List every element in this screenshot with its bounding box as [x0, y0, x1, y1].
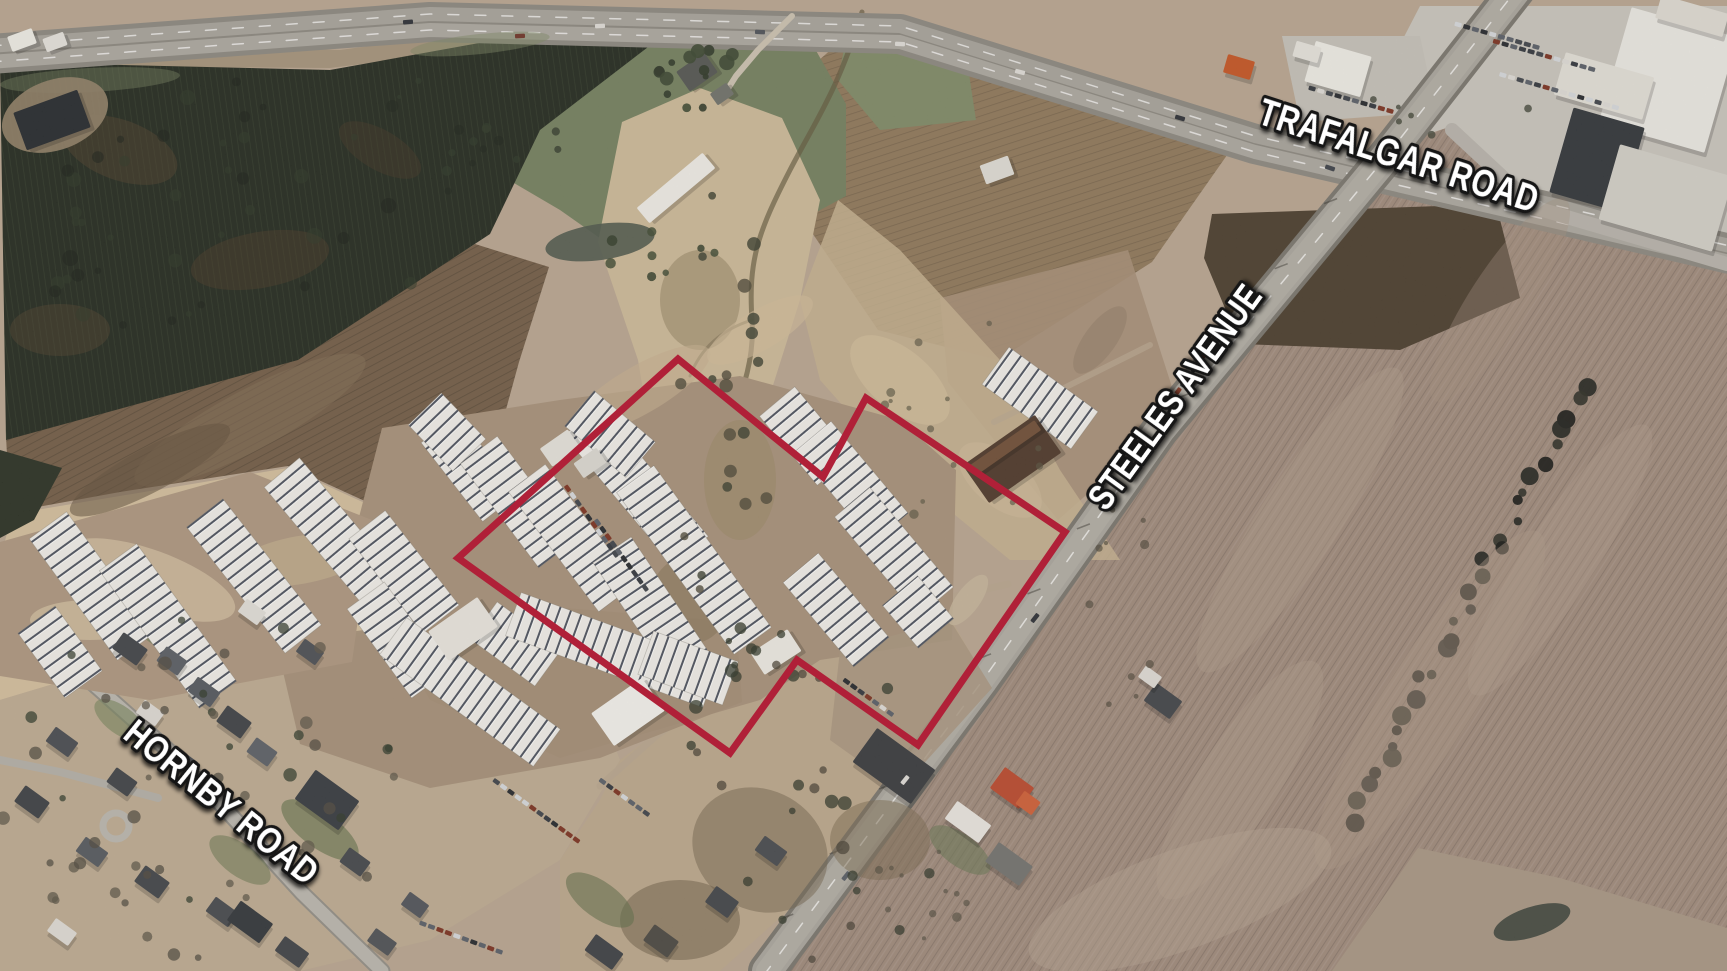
aerial-map-screenshot: TRAFALGAR ROAD STEELES AVENUE HORNBY ROA…	[0, 0, 1727, 971]
satellite-image: TRAFALGAR ROAD STEELES AVENUE HORNBY ROA…	[0, 0, 1727, 971]
